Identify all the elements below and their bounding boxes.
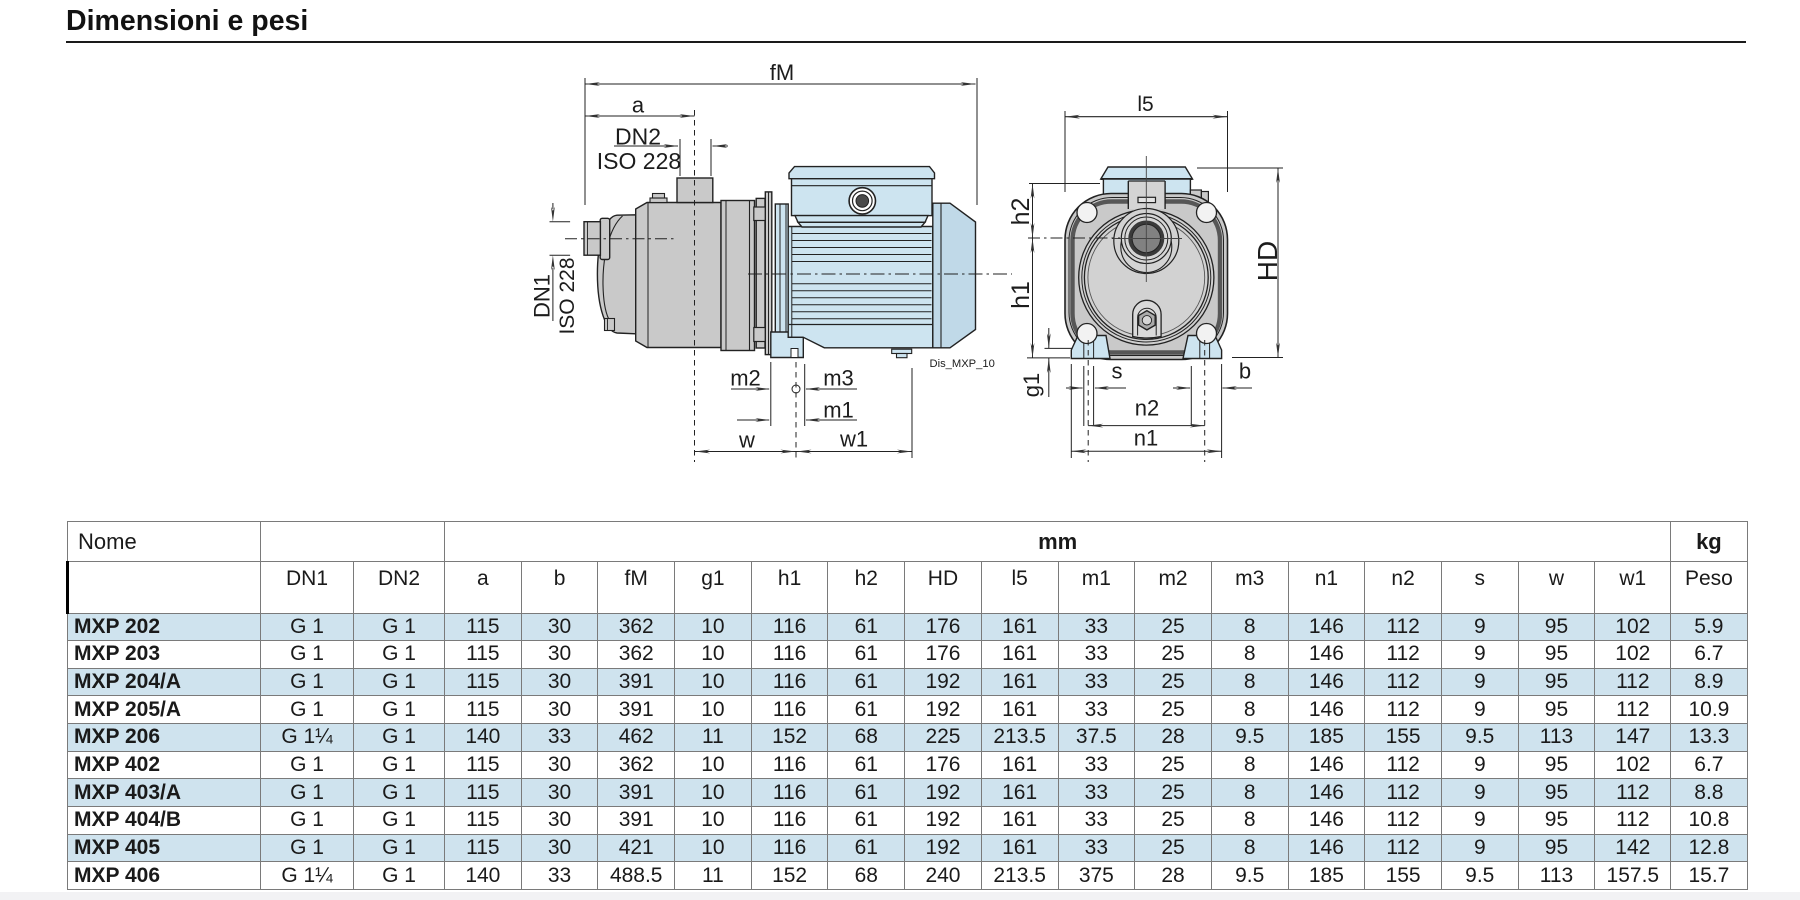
svg-text:DN2: DN2: [615, 124, 661, 150]
svg-text:m1: m1: [823, 398, 854, 423]
svg-text:h2: h2: [1007, 198, 1035, 226]
svg-text:m3: m3: [823, 366, 854, 391]
svg-text:g1: g1: [1019, 373, 1044, 397]
svg-text:ISO 228: ISO 228: [556, 257, 579, 334]
svg-text:w1: w1: [839, 427, 868, 452]
svg-text:w: w: [738, 428, 755, 453]
svg-text:b: b: [1239, 359, 1251, 384]
svg-text:DN1: DN1: [530, 274, 555, 318]
svg-text:ISO 228: ISO 228: [597, 148, 681, 174]
svg-text:a: a: [632, 93, 645, 118]
svg-text:HD: HD: [1252, 241, 1283, 281]
svg-text:h1: h1: [1007, 281, 1035, 309]
svg-text:s: s: [1112, 359, 1123, 384]
svg-text:l5: l5: [1137, 93, 1153, 116]
svg-text:m2: m2: [730, 366, 761, 391]
svg-text:n1: n1: [1134, 426, 1158, 451]
svg-text:Dis_MXP_10: Dis_MXP_10: [930, 358, 995, 370]
svg-text:fM: fM: [770, 60, 794, 85]
svg-text:n2: n2: [1135, 396, 1159, 421]
